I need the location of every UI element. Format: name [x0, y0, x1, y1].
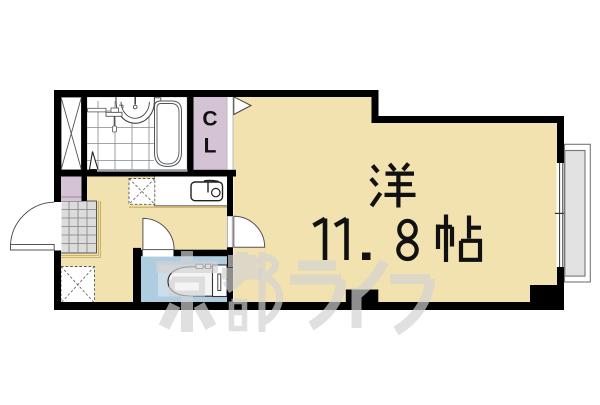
svg-text:C: C	[202, 108, 217, 131]
svg-text:L: L	[204, 135, 217, 158]
